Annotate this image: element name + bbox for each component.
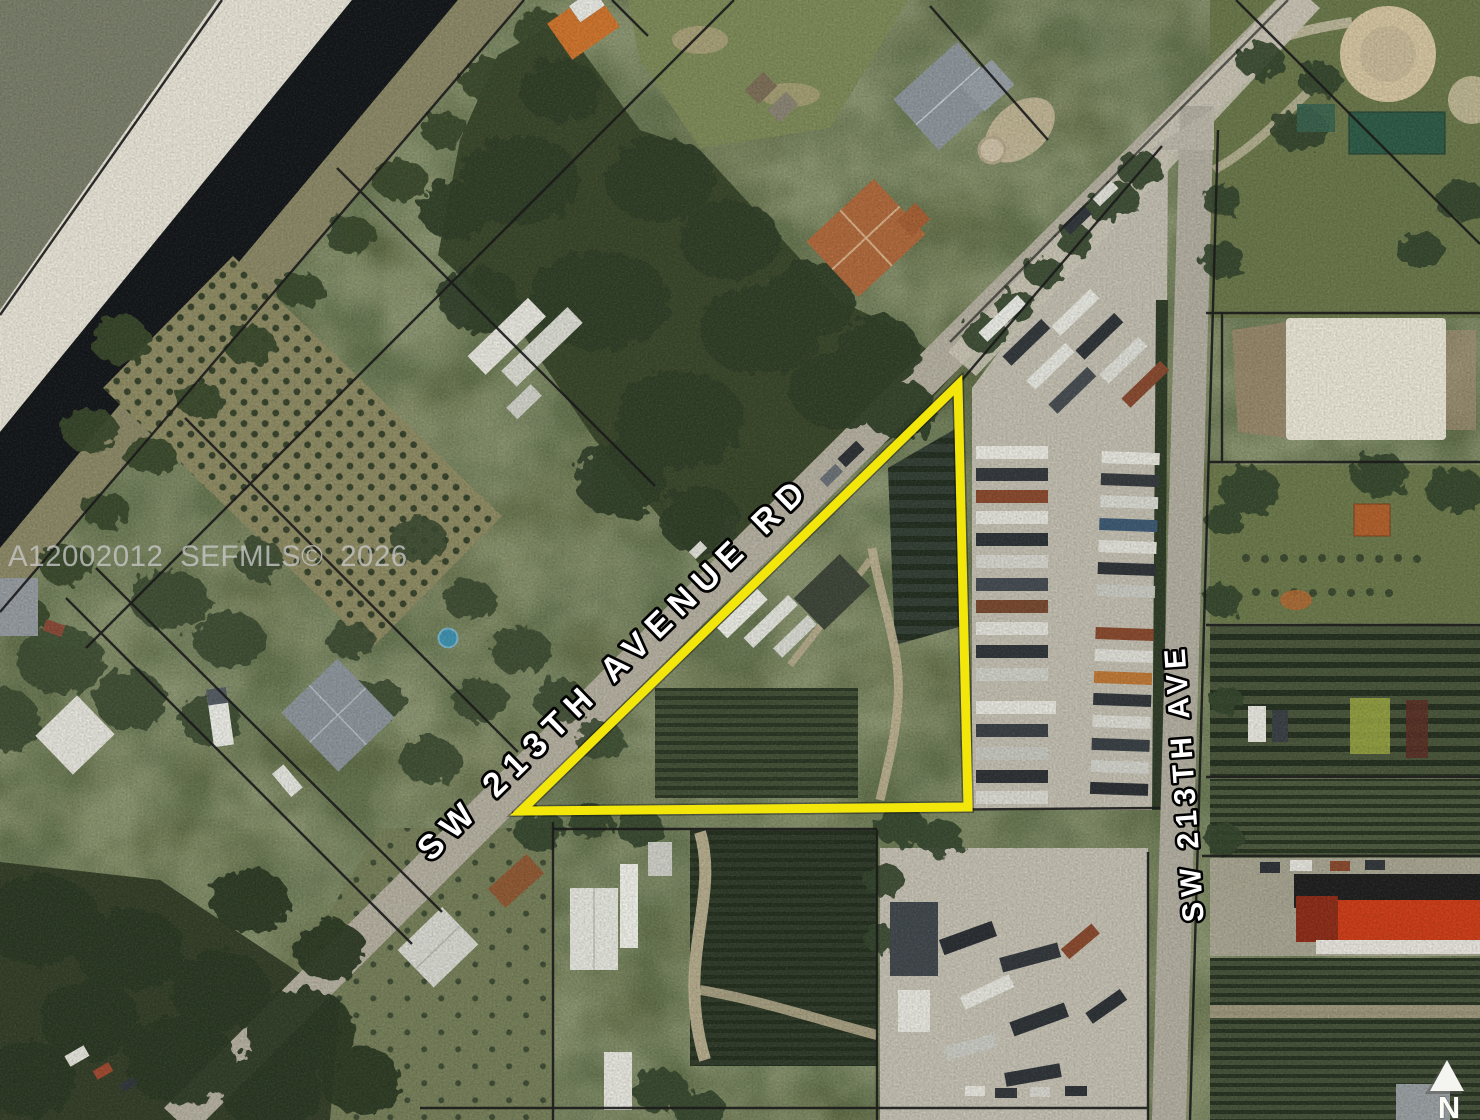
north-label: N (1438, 1090, 1460, 1120)
aerial-map-image: SW 213TH AVENUE RD SW 213TH AVE A1200201… (0, 0, 1480, 1120)
mls-watermark: A12002012 SEFMLS© 2026 (8, 540, 408, 573)
aerial-parcel-map: SW 213TH AVENUE RD SW 213TH AVE A1200201… (0, 0, 1480, 1120)
